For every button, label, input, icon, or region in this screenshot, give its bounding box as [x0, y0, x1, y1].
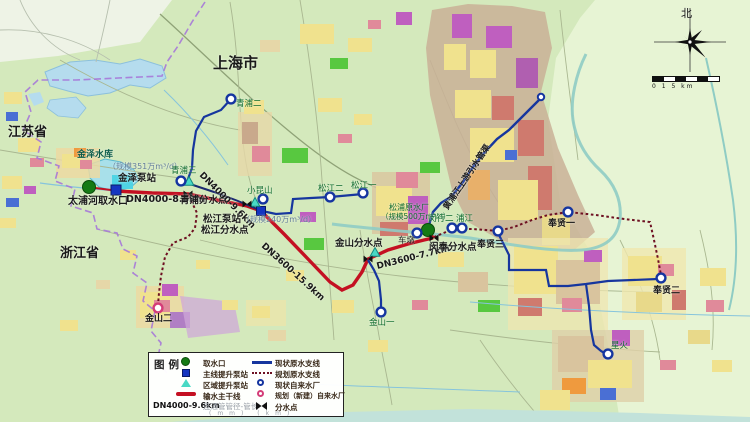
- label-chedun: 车墩: [398, 237, 415, 246]
- songpu-intake-icon: [422, 224, 435, 237]
- plant-qingpu3: [177, 177, 186, 186]
- label-xinghuo: 星火: [611, 342, 628, 351]
- base-map-svg: [0, 0, 750, 422]
- legend-item-regional-pump: 区域提升泵站: [203, 380, 248, 391]
- label-songjiang2: 松江二: [318, 185, 344, 194]
- label-xiaokunshan: 小昆山: [247, 187, 273, 196]
- region-label-jiangsu: 江苏省: [8, 126, 47, 139]
- plant-fengxian1: [564, 208, 573, 217]
- map-canvas: 上海市 江苏省 浙江省 金泽水库 （规模351万m³/d） 金泽泵站 太浦河取水…: [0, 0, 750, 422]
- label-jinshan2: 金山二: [145, 315, 172, 324]
- legend-split-icon: [256, 402, 268, 410]
- legend-existing-branch-icon: [252, 361, 272, 364]
- legend-planned-branch-icon: [252, 372, 272, 374]
- legend-planned-plant-icon: [257, 390, 264, 397]
- label-fengxian3: 奉贤三: [477, 241, 504, 250]
- plant-minhang2: [448, 224, 457, 233]
- scale-bar-text: 0 1 5 km: [652, 83, 728, 90]
- plant-jinshan1: [377, 308, 386, 317]
- plant-jinshan2-planned: [154, 304, 163, 313]
- label-pujiang: 浦江: [456, 215, 473, 224]
- scale-bar: 0 1 5 km: [652, 76, 728, 90]
- label-songpu-plant: 松浦原水厂: [389, 204, 429, 212]
- label-songjiang-pump-scale: （规模240万m³/d）: [242, 216, 316, 224]
- label-qingpu2: 青浦二: [236, 100, 262, 109]
- label-songjiang-pump: 松江泵站: [203, 215, 241, 225]
- label-songjiang-split: 松江分水点: [201, 226, 249, 236]
- label-fengxian2: 奉贤二: [653, 287, 680, 296]
- legend-regional-pump-icon: [181, 379, 191, 387]
- region-label-shanghai: 上海市: [213, 56, 258, 71]
- jinze-pump-icon: [111, 185, 121, 195]
- label-minhang2: 闵行二: [428, 215, 454, 224]
- label-songjiang1: 松江一: [351, 182, 377, 191]
- legend-item-main-pump: 主线提升泵站: [203, 369, 248, 380]
- legend-intake-icon: [181, 357, 190, 366]
- legend-item-intake: 取水口: [203, 358, 226, 369]
- legend-box: 图例 取水口 主线提升泵站 区域提升泵站 输水主干线 DN4000-9.6km …: [148, 352, 344, 417]
- plant-pujiang: [458, 224, 467, 233]
- legend-item-existing-plant: 现状自来水厂: [275, 380, 320, 391]
- label-qingpu3: 青浦三: [171, 167, 197, 176]
- label-jinze-pump: 金泽泵站: [118, 174, 156, 184]
- region-label-zhejiang: 浙江省: [60, 247, 99, 260]
- label-minfeng-split: 闵奉分水点: [429, 243, 477, 253]
- label-fengxian1: 奉贤一: [548, 220, 575, 229]
- plant-fengxian2: [657, 274, 666, 283]
- conduit-end-node: [538, 94, 544, 100]
- compass-rose-icon: [650, 4, 730, 74]
- scale-bar-segments: [652, 76, 720, 82]
- taipu-intake-icon: [83, 181, 96, 194]
- compass-rose: [650, 4, 730, 74]
- label-taipu-intake: 太浦河取水口: [68, 197, 128, 207]
- legend-item-planned-branch: 规划原水支线: [275, 369, 320, 380]
- legend-item-planned-plant: 规划（新建）自来水厂: [275, 391, 345, 401]
- label-jinze-reservoir: 金泽水库: [77, 151, 113, 160]
- legend-title: 图例: [154, 357, 183, 372]
- plant-qingpu2: [227, 95, 236, 104]
- legend-item-existing-branch: 现状原水支线: [275, 358, 320, 369]
- legend-item-split-point: 分水点: [275, 402, 298, 413]
- legend-main-pump-icon: [182, 369, 190, 377]
- label-jinshan1: 金山一: [369, 319, 395, 328]
- legend-main-line-icon: [176, 392, 196, 396]
- plant-fengxian3: [494, 227, 503, 236]
- legend-existing-plant-icon: [257, 379, 264, 386]
- label-jinshan-split: 金山分水点: [335, 239, 383, 249]
